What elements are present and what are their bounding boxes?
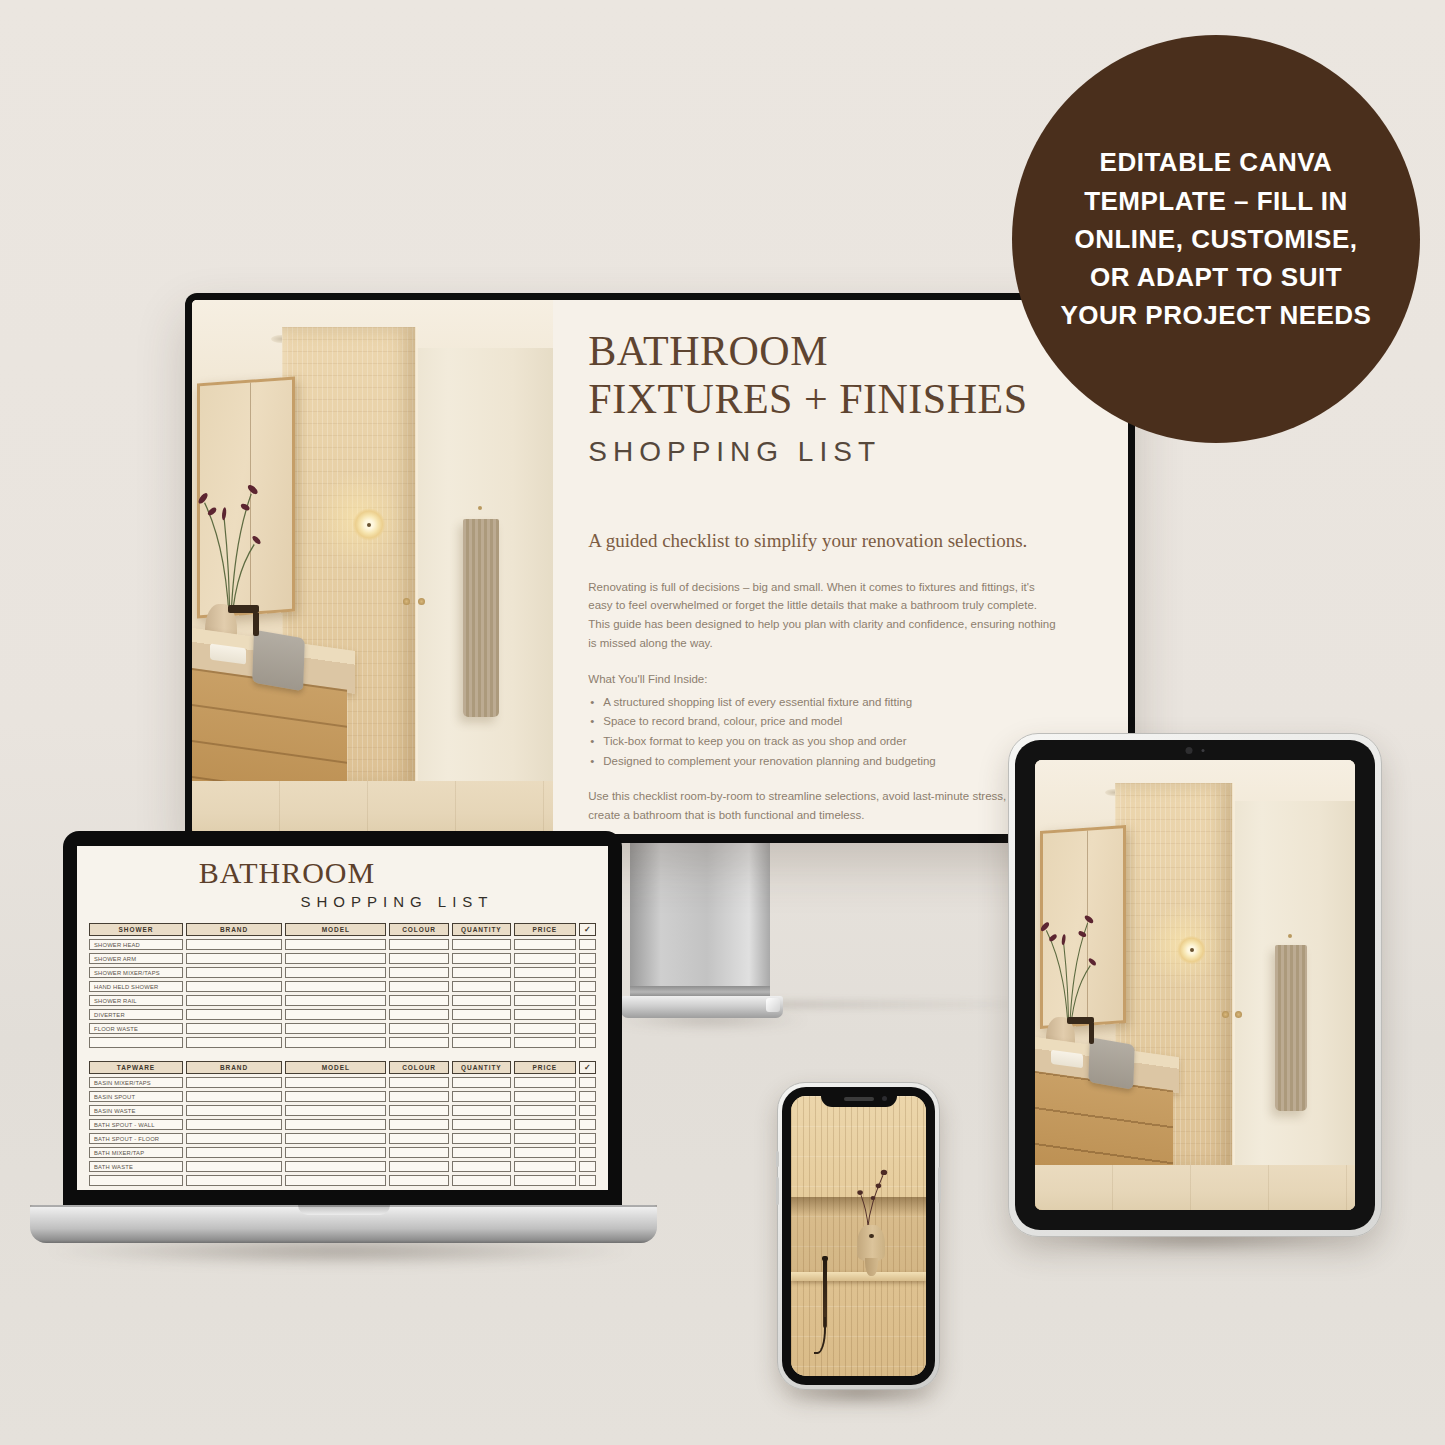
table-row: FLOOR WASTE (89, 1023, 596, 1034)
sculptural-vase (857, 1225, 885, 1261)
input-cell[interactable] (452, 1175, 511, 1186)
phone-notch (821, 1092, 897, 1107)
item-label-cell: BASIN SPOUT (89, 1091, 183, 1102)
input-cell[interactable] (452, 939, 511, 950)
laptop-page-subtitle: SHOPPING LIST (222, 893, 572, 910)
input-cell[interactable] (452, 1105, 511, 1116)
check-column-header: ✓ (579, 1061, 596, 1074)
input-cell[interactable] (186, 1009, 282, 1020)
phone-bezel (782, 1087, 935, 1385)
input-cell[interactable] (186, 1147, 282, 1158)
hanging-towel (463, 519, 499, 717)
input-cell[interactable] (452, 1077, 511, 1088)
monitor-stand-foot (621, 996, 783, 1018)
table-row: BATH SPOUT - FLOOR (89, 1133, 596, 1144)
column-header: MODEL (285, 1061, 386, 1074)
phone-camera (882, 1096, 887, 1101)
input-cell[interactable] (452, 1161, 511, 1172)
item-label-cell: SHOWER HEAD (89, 939, 183, 950)
badge-text: EDITABLE CANVA TEMPLATE – FILL IN ONLINE… (1027, 143, 1406, 334)
input-cell[interactable] (514, 1009, 576, 1020)
input-cell[interactable] (285, 1147, 386, 1158)
item-label-cell: BASIN MIXER/TAPS (89, 1077, 183, 1088)
input-cell[interactable] (389, 981, 448, 992)
find-inside-heading: What You'll Find Inside: (588, 670, 1060, 689)
column-header: PRICE (514, 923, 576, 936)
input-cell[interactable] (186, 1037, 282, 1048)
page-subtitle: SHOPPING LIST (588, 436, 1103, 468)
table-row (89, 1175, 596, 1186)
tablet-device (1008, 733, 1382, 1237)
table-row (89, 1037, 596, 1048)
input-cell[interactable] (514, 939, 576, 950)
phone-screen (791, 1096, 926, 1376)
phone-volume-button (776, 1151, 779, 1167)
input-cell[interactable] (389, 967, 448, 978)
input-cell[interactable] (452, 1009, 511, 1020)
phone-volume-button (776, 1177, 779, 1205)
input-cell[interactable] (285, 1077, 386, 1088)
tablet-bezel (1015, 740, 1375, 1230)
input-cell[interactable] (186, 1161, 282, 1172)
input-cell[interactable] (285, 1023, 386, 1034)
wall-sconce (353, 508, 386, 541)
checkbox-cell[interactable] (579, 939, 596, 950)
input-cell[interactable] (389, 1133, 448, 1144)
outro-paragraph: Use this checklist room-by-room to strea… (588, 787, 1060, 824)
item-label-cell (89, 1175, 183, 1186)
input-cell[interactable] (389, 939, 448, 950)
input-cell[interactable] (514, 1133, 576, 1144)
input-cell[interactable] (452, 953, 511, 964)
checkbox-cell[interactable] (579, 1161, 596, 1172)
photo-floor (192, 781, 553, 834)
shower-knob (418, 598, 425, 605)
input-cell[interactable] (514, 1077, 576, 1088)
laptop-page-header: BATHROOM SHOPPING LIST (77, 856, 608, 914)
table-row: SHOWER ARM (89, 953, 596, 964)
checkbox-cell[interactable] (579, 1037, 596, 1048)
input-cell[interactable] (452, 1037, 511, 1048)
laptop-screen: BATHROOM SHOPPING LIST SHOWERBRANDMODELC… (77, 846, 608, 1190)
bath-niche-photo (791, 1096, 926, 1376)
wall-faucet (1067, 1017, 1094, 1023)
column-header: COLOUR (389, 1061, 448, 1074)
checkbox-cell[interactable] (579, 953, 596, 964)
input-cell[interactable] (285, 995, 386, 1006)
canva-template-badge: EDITABLE CANVA TEMPLATE – FILL IN ONLINE… (1012, 35, 1420, 443)
table-row: BASIN SPOUT (89, 1091, 596, 1102)
tablet-camera (1186, 747, 1205, 754)
input-cell[interactable] (389, 1009, 448, 1020)
bullet-item: Tick-box format to keep you on track as … (588, 732, 1060, 752)
input-cell[interactable] (452, 995, 511, 1006)
floor-shadow-line (765, 1000, 1045, 1009)
check-column-header: ✓ (579, 923, 596, 936)
checkbox-cell[interactable] (579, 1091, 596, 1102)
shower-table-host: SHOWERBRANDMODELCOLOURQUANTITYPRICE✓SHOW… (86, 920, 599, 1051)
input-cell[interactable] (514, 953, 576, 964)
tablet-screen (1035, 760, 1355, 1210)
table-row: SHOWER MIXER/TAPS (89, 967, 596, 978)
shopping-list-tables: SHOWERBRANDMODELCOLOURQUANTITYPRICE✓SHOW… (86, 920, 599, 1189)
counter-towel (252, 629, 304, 691)
item-label-cell: BATH WASTE (89, 1161, 183, 1172)
input-cell[interactable] (452, 1147, 511, 1158)
table-row: BATH WASTE (89, 1161, 596, 1172)
item-label-cell: BASIN WASTE (89, 1105, 183, 1116)
item-label-cell: SHOWER MIXER/TAPS (89, 967, 183, 978)
input-cell[interactable] (514, 1091, 576, 1102)
input-cell[interactable] (514, 1175, 576, 1186)
input-cell[interactable] (186, 1023, 282, 1034)
input-cell[interactable] (389, 1105, 448, 1116)
laptop-device: BATHROOM SHOPPING LIST SHOWERBRANDMODELC… (63, 831, 622, 1207)
input-cell[interactable] (389, 1147, 448, 1158)
header-row: TAPWAREBRANDMODELCOLOURQUANTITYPRICE✓ (89, 1061, 596, 1074)
input-cell[interactable] (186, 1133, 282, 1144)
input-cell[interactable] (186, 1119, 282, 1130)
input-cell[interactable] (389, 1037, 448, 1048)
table-row: BASIN MIXER/TAPS (89, 1077, 596, 1088)
shopping-table: SHOWERBRANDMODELCOLOURQUANTITYPRICE✓SHOW… (86, 920, 599, 1051)
input-cell[interactable] (285, 1133, 386, 1144)
input-cell[interactable] (514, 967, 576, 978)
item-label-cell: FLOOR WASTE (89, 1023, 183, 1034)
input-cell[interactable] (186, 1091, 282, 1102)
input-cell[interactable] (452, 981, 511, 992)
input-cell[interactable] (389, 1077, 448, 1088)
column-header: BRAND (186, 923, 282, 936)
page-tagline: A guided checklist to simplify your reno… (588, 530, 1103, 552)
column-header: QUANTITY (452, 923, 511, 936)
input-cell[interactable] (285, 967, 386, 978)
page-title: BATHROOM FIXTURES + FINISHES (588, 328, 1103, 424)
input-cell[interactable] (285, 1161, 386, 1172)
checkbox-cell[interactable] (579, 1147, 596, 1158)
input-cell[interactable] (452, 1133, 511, 1144)
checkbox-cell[interactable] (579, 981, 596, 992)
table-row: HAND HELD SHOWER (89, 981, 596, 992)
input-cell[interactable] (389, 1161, 448, 1172)
monitor-stand-neck (630, 840, 770, 998)
wall-faucet (228, 605, 259, 612)
item-label-cell: BATH MIXER/TAP (89, 1147, 183, 1158)
monitor-device: BATHROOM FIXTURES + FINISHES SHOPPING LI… (185, 293, 1135, 843)
niche-ledge (791, 1272, 926, 1281)
header-row: SHOWERBRANDMODELCOLOURQUANTITYPRICE✓ (89, 923, 596, 936)
shopping-table: TAPWAREBRANDMODELCOLOURQUANTITYPRICE✓BAS… (86, 1058, 599, 1189)
checkbox-cell[interactable] (579, 1023, 596, 1034)
table-gap (86, 1051, 599, 1058)
checkbox-cell[interactable] (579, 967, 596, 978)
input-cell[interactable] (389, 1091, 448, 1102)
input-cell[interactable] (285, 1037, 386, 1048)
hanging-towel (1275, 945, 1307, 1112)
input-cell[interactable] (186, 1077, 282, 1088)
checkbox-cell[interactable] (579, 1133, 596, 1144)
column-header: PRICE (514, 1061, 576, 1074)
bullet-item: Space to record brand, colour, price and… (588, 712, 1060, 732)
checkbox-cell[interactable] (579, 1175, 596, 1186)
input-cell[interactable] (452, 1119, 511, 1130)
product-mockup-scene: BATHROOM FIXTURES + FINISHES SHOPPING LI… (0, 0, 1445, 1445)
table-row: BATH SPOUT - WALL (89, 1119, 596, 1130)
item-label-cell: SHOWER ARM (89, 953, 183, 964)
item-label-cell: DIVERTER (89, 1009, 183, 1020)
column-header: SHOWER (89, 923, 183, 936)
input-cell[interactable] (285, 1175, 386, 1186)
phone-power-button (938, 1167, 941, 1203)
input-cell[interactable] (452, 967, 511, 978)
table-row: BASIN WASTE (89, 1105, 596, 1116)
intro-paragraph: Renovating is full of decisions – big an… (588, 578, 1060, 653)
checkbox-cell[interactable] (579, 995, 596, 1006)
input-cell[interactable] (514, 1023, 576, 1034)
counter-towel (1089, 1037, 1135, 1090)
input-cell[interactable] (285, 981, 386, 992)
input-cell[interactable] (285, 1119, 386, 1130)
input-cell[interactable] (514, 995, 576, 1006)
input-cell[interactable] (452, 1091, 511, 1102)
input-cell[interactable] (389, 1023, 448, 1034)
laptop-base (30, 1205, 657, 1243)
input-cell[interactable] (285, 1091, 386, 1102)
input-cell[interactable] (186, 967, 282, 978)
column-header: TAPWARE (89, 1061, 183, 1074)
input-cell[interactable] (389, 995, 448, 1006)
input-cell[interactable] (452, 1023, 511, 1034)
input-cell[interactable] (514, 1105, 576, 1116)
table-row: DIVERTER (89, 1009, 596, 1020)
input-cell[interactable] (186, 939, 282, 950)
table-row: SHOWER RAIL (89, 995, 596, 1006)
monitor-screen: BATHROOM FIXTURES + FINISHES SHOPPING LI… (192, 300, 1128, 834)
column-header: COLOUR (389, 923, 448, 936)
bathroom-photo (1035, 760, 1355, 1210)
table-row: SHOWER HEAD (89, 939, 596, 950)
bathroom-photo (192, 300, 553, 834)
item-label-cell: BATH SPOUT - FLOOR (89, 1133, 183, 1144)
shower-hose (814, 1317, 826, 1353)
input-cell[interactable] (186, 1175, 282, 1186)
item-label-cell: HAND HELD SHOWER (89, 981, 183, 992)
column-header: BRAND (186, 1061, 282, 1074)
phone-speaker (844, 1097, 874, 1101)
input-cell[interactable] (514, 1161, 576, 1172)
photo-floor (1035, 1165, 1355, 1210)
dried-branches (850, 1163, 896, 1230)
laptop-page-title: BATHROOM (77, 856, 497, 890)
input-cell[interactable] (514, 1119, 576, 1130)
input-cell[interactable] (514, 981, 576, 992)
checkbox-cell[interactable] (579, 1009, 596, 1020)
input-cell[interactable] (389, 1119, 448, 1130)
feature-bullet-list: A structured shopping list of every esse… (588, 693, 1060, 771)
checkbox-cell[interactable] (579, 1105, 596, 1116)
column-header: QUANTITY (452, 1061, 511, 1074)
input-cell[interactable] (285, 953, 386, 964)
input-cell[interactable] (186, 995, 282, 1006)
input-cell[interactable] (285, 939, 386, 950)
bullet-item: Designed to complement your renovation p… (588, 752, 1060, 772)
input-cell[interactable] (186, 981, 282, 992)
phone-device (777, 1082, 940, 1390)
column-header: MODEL (285, 923, 386, 936)
bullet-item: A structured shopping list of every esse… (588, 693, 1060, 713)
input-cell[interactable] (389, 953, 448, 964)
item-label-cell (89, 1037, 183, 1048)
input-cell[interactable] (514, 1147, 576, 1158)
item-label-cell: BATH SPOUT - WALL (89, 1119, 183, 1130)
checkbox-cell[interactable] (579, 1119, 596, 1130)
input-cell[interactable] (285, 1105, 386, 1116)
input-cell[interactable] (389, 1175, 448, 1186)
checkbox-cell[interactable] (579, 1077, 596, 1088)
monitor-photo-panel (192, 300, 553, 834)
table-row: BATH MIXER/TAP (89, 1147, 596, 1158)
input-cell[interactable] (186, 953, 282, 964)
item-label-cell: SHOWER RAIL (89, 995, 183, 1006)
input-cell[interactable] (285, 1009, 386, 1020)
input-cell[interactable] (186, 1105, 282, 1116)
tapware-table-host: TAPWAREBRANDMODELCOLOURQUANTITYPRICE✓BAS… (86, 1058, 599, 1189)
input-cell[interactable] (514, 1037, 576, 1048)
